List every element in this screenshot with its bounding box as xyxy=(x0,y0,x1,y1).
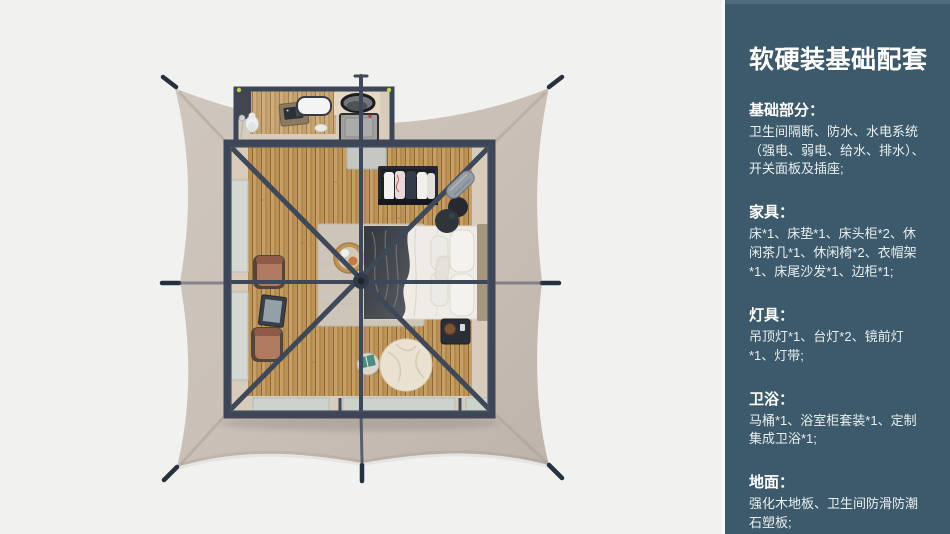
stool-large xyxy=(435,209,459,233)
washbasin xyxy=(334,92,380,115)
spec-heading-lighting: 灯具： xyxy=(749,304,928,325)
bed xyxy=(364,224,488,321)
lounge-chair-2 xyxy=(251,327,283,362)
spec-body-basics: 卫生间隔断、防水、水电系统（强电、弱电、给水、排水）、开关面板及插座; xyxy=(749,123,928,180)
spec-body-lighting: 吊顶灯*1、台灯*2、镜前灯*1、灯带; xyxy=(749,328,928,366)
hanging-clothes xyxy=(384,171,435,200)
spec-section-flooring: 地面： 强化木地板、卫生间防滑防潮石塑板; xyxy=(749,471,928,533)
spec-heading-flooring: 地面： xyxy=(749,471,928,492)
spec-section-bathroom: 卫浴： 马桶*1、浴室柜套装*1、定制集成卫浴*1; xyxy=(749,388,928,450)
spec-heading-bathroom: 卫浴： xyxy=(749,388,928,409)
entry-mat xyxy=(347,147,386,169)
tent-top-view-rendering xyxy=(0,0,722,534)
spec-section-basics: 基础部分： 卫生间隔断、防水、水电系统（强电、弱电、给水、排水）、开关面板及插座… xyxy=(749,99,928,180)
corner-marker-right xyxy=(387,88,391,92)
spec-heading-basics: 基础部分： xyxy=(749,99,928,120)
stake-top-left xyxy=(163,77,176,87)
spec-heading-furniture: 家具： xyxy=(749,201,928,222)
spec-body-flooring: 强化木地板、卫生间防滑防潮石塑板; xyxy=(749,495,928,533)
spec-section-furniture: 家具： 床*1、床垫*1、床头柜*2、休闲茶几*1、休闲椅*2、衣帽架*1、床尾… xyxy=(749,201,928,282)
spec-body-furniture: 床*1、床垫*1、床头柜*2、休闲茶几*1、休闲椅*2、衣帽架*1、床尾沙发*1… xyxy=(749,225,928,282)
left-window-lower xyxy=(231,292,248,380)
spec-panel: 软硬装基础配套 基础部分： 卫生间隔断、防水、水电系统（强电、弱电、给水、排水）… xyxy=(722,0,950,534)
headboard xyxy=(477,224,488,321)
bath-skylight xyxy=(297,97,331,115)
glass-door-left xyxy=(253,398,329,412)
left-window-upper xyxy=(231,180,248,272)
bathroom-annex xyxy=(236,88,392,143)
corner-marker-left xyxy=(237,88,241,92)
floor-basin xyxy=(315,125,327,132)
wall-mirror xyxy=(258,295,286,328)
spec-section-lighting: 灯具： 吊顶灯*1、台灯*2、镜前灯*1、灯带; xyxy=(749,304,928,366)
tent-render-stage xyxy=(0,0,722,534)
spec-body-bathroom: 马桶*1、浴室柜套装*1、定制集成卫浴*1; xyxy=(749,412,928,450)
panel-title: 软硬装基础配套 xyxy=(749,46,928,75)
nightstand xyxy=(441,319,470,344)
stake-top-right xyxy=(549,77,562,87)
clothes-rack xyxy=(378,166,438,205)
stake-bottom-right xyxy=(549,465,562,478)
stake-bottom-left xyxy=(164,467,177,480)
